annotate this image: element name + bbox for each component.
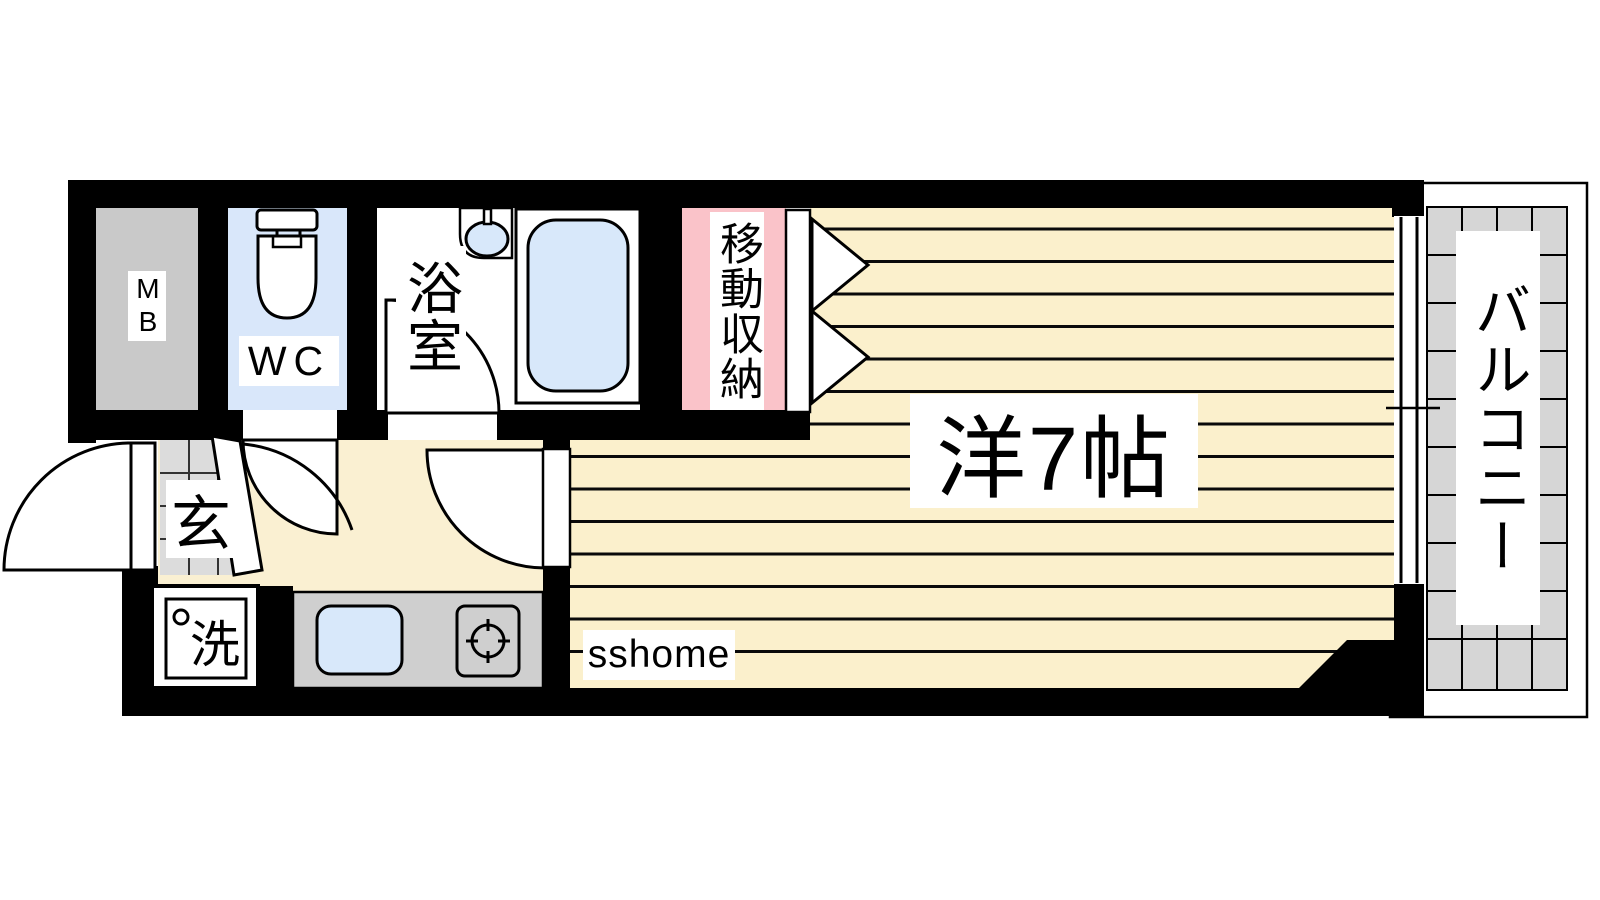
wall-wc-bath xyxy=(347,208,377,412)
balcony-label: バルコニー xyxy=(1456,231,1540,625)
main-room-door-leaf xyxy=(543,449,570,567)
entrance-door-leaf xyxy=(131,443,155,570)
kitchen-counter xyxy=(293,592,543,688)
bathroom-sink xyxy=(460,208,512,258)
wall-bath-closet xyxy=(640,208,682,412)
entrance-label: 玄 xyxy=(166,480,236,558)
main-room-label: 洋7帖 xyxy=(910,394,1198,508)
bathroom-label: 浴室 xyxy=(396,246,466,388)
floor-plan-drawing xyxy=(0,0,1600,900)
stove xyxy=(457,606,519,676)
meter-box-label: MB xyxy=(128,271,166,341)
laundry-label: 洗 xyxy=(186,610,244,672)
kitchen-sink xyxy=(317,606,402,674)
toilet-door-opening xyxy=(243,410,337,440)
wall-laundry-kitchen xyxy=(258,586,293,688)
toilet-fixture xyxy=(257,210,317,318)
wall-bottom xyxy=(122,688,1424,716)
wall-top xyxy=(68,180,1396,208)
closet-door-track xyxy=(786,210,810,412)
watermark-text: sshome xyxy=(583,630,735,680)
entrance-door xyxy=(4,443,155,570)
bathtub xyxy=(516,209,640,403)
wall-mb-wc xyxy=(198,208,228,412)
toilet-label: WC xyxy=(239,336,339,386)
floor-plan-page: MB WC 浴室 移動収納 洋7帖 玄 洗 バルコニー sshome xyxy=(0,0,1600,900)
wall-right-bottom xyxy=(1394,583,1424,716)
faucet-icon xyxy=(484,209,491,224)
wall-left xyxy=(68,180,96,443)
closet-label: 移動収納 xyxy=(710,212,764,410)
